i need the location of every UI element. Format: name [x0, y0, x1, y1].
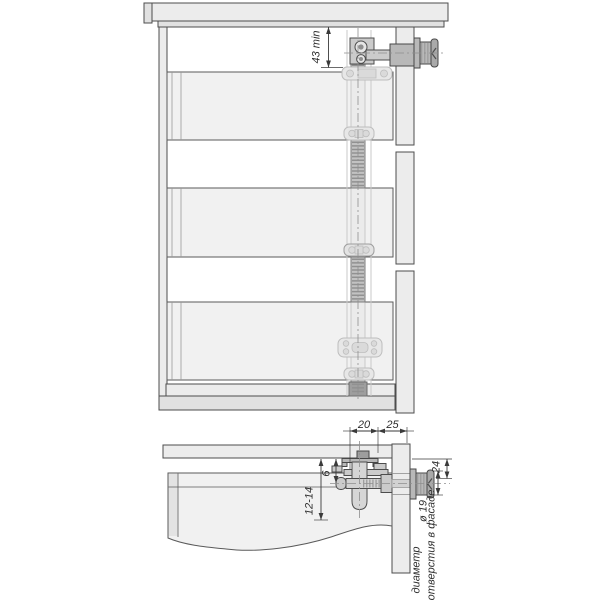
latch-screw-hole	[371, 349, 377, 355]
latch-plate-2	[344, 127, 374, 140]
latch-screw-hole	[371, 341, 377, 347]
latch-screw-hole	[349, 371, 356, 378]
adjuster-tab-left	[332, 466, 342, 472]
lock-lever	[366, 50, 392, 60]
dimension-label: 6	[321, 470, 333, 477]
latch-screw-hole	[363, 130, 370, 137]
caption-line-1: диаметр	[411, 546, 423, 593]
bracket-pivot-pin	[358, 44, 363, 49]
latch-plate-1	[342, 67, 392, 80]
latch-center	[355, 130, 363, 138]
latch-screw-hole	[343, 341, 349, 347]
latch-plate-4	[338, 338, 382, 357]
top-panel-front-edge	[158, 21, 444, 27]
facade-panel	[392, 444, 410, 573]
latch-screw-hole	[347, 70, 354, 77]
latch-center	[352, 343, 368, 353]
detail-section-view: 20 25 6 12-14 24 ø 19	[163, 419, 452, 600]
latch-screw-hole	[363, 371, 370, 378]
latch-plate-3	[344, 244, 374, 256]
mounting-plate-tab	[342, 463, 347, 467]
top-panel-end-cap	[144, 3, 152, 23]
installation-diagram-page: 43 min	[0, 0, 600, 600]
dimension-label: 43 min	[311, 30, 323, 63]
adjuster-tab-right	[374, 464, 386, 470]
latch-screw-hole	[381, 70, 388, 77]
lock-assembly	[344, 38, 446, 68]
dimension-label-25: 25	[385, 419, 399, 431]
latch-screw-hole	[349, 247, 356, 254]
facade-strip-middle	[396, 152, 414, 264]
dimension-label: 12-14	[304, 487, 316, 515]
caption-line-2: отверстия в фасаде	[426, 490, 438, 600]
dimension-label-20: 20	[357, 419, 371, 431]
cabinet-back-panel	[159, 27, 167, 410]
bracket-pivot-pin	[359, 57, 363, 61]
lock-inner-body	[390, 44, 414, 66]
cabinet-bottom-front-edge	[159, 396, 395, 410]
latch-center	[355, 246, 363, 254]
facade-strip-bottom	[396, 271, 414, 413]
cylinder-flange	[410, 469, 416, 499]
mounting-boss	[357, 451, 369, 459]
latch-screw-hole	[363, 247, 370, 254]
latch-plate-5	[344, 368, 374, 380]
dimension-label: 24	[431, 461, 443, 474]
dimension-43-min: 43 min	[311, 27, 344, 68]
latch-center	[355, 370, 363, 378]
installation-diagram: 43 min	[0, 0, 600, 600]
cabinet-top-panel	[152, 3, 448, 21]
latch-center	[358, 69, 376, 78]
latch-screw-hole	[349, 130, 356, 137]
front-section-view: 43 min	[144, 3, 448, 413]
drawer-side-edge-band	[169, 474, 178, 536]
latch-screw-hole	[343, 349, 349, 355]
